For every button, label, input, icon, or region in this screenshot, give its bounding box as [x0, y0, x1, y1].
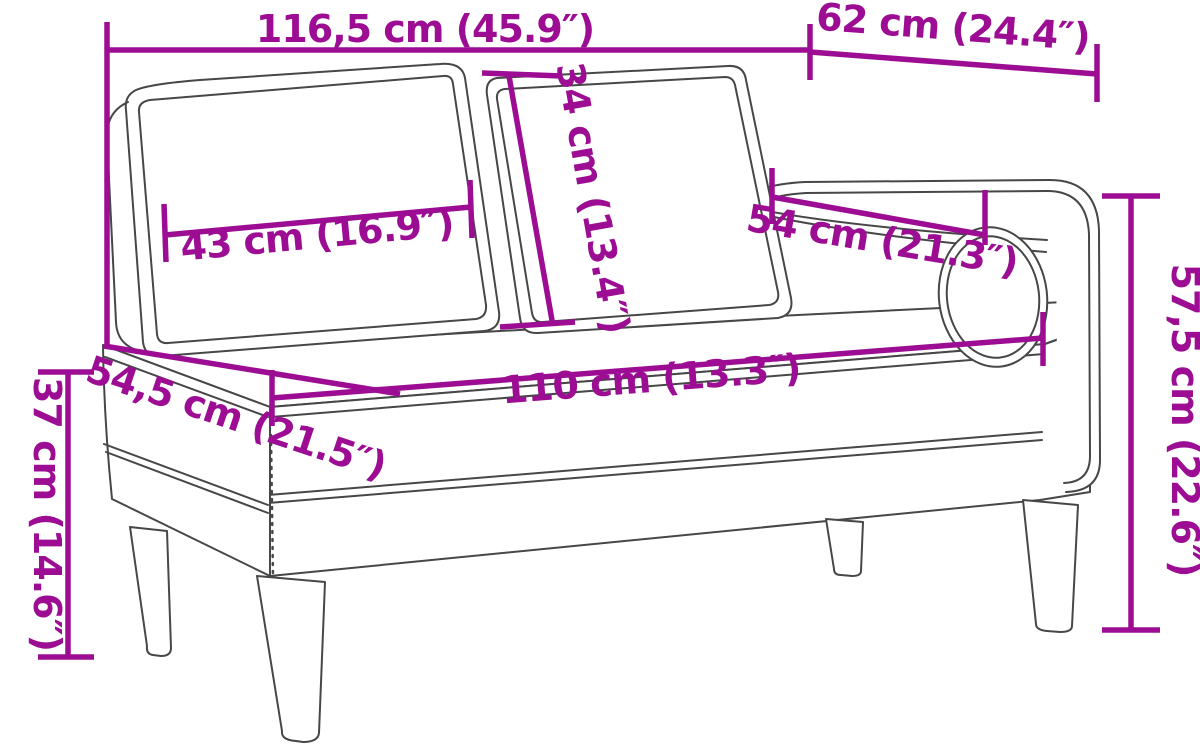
dim-label-overall-height: 57,5 cm (22.6″): [1163, 264, 1200, 577]
diagram-canvas: 116,5 cm (45.9″) 62 cm (24.4″) 34 cm (13…: [0, 0, 1200, 745]
leg-back-right: [826, 519, 863, 576]
dimension-diagram: 116,5 cm (45.9″) 62 cm (24.4″) 34 cm (13…: [0, 0, 1200, 745]
dim-label-seat-height: 37 cm (14.6″): [25, 377, 69, 651]
leg-front-left: [257, 576, 325, 742]
dim-line-overall-height: [1102, 196, 1160, 630]
dim-label-armrest-side-depth: 62 cm (24.4″): [815, 0, 1092, 59]
leg-front-right: [1023, 500, 1078, 632]
leg-back-left: [130, 527, 171, 656]
dim-label-overall-width: 116,5 cm (45.9″): [256, 7, 594, 51]
